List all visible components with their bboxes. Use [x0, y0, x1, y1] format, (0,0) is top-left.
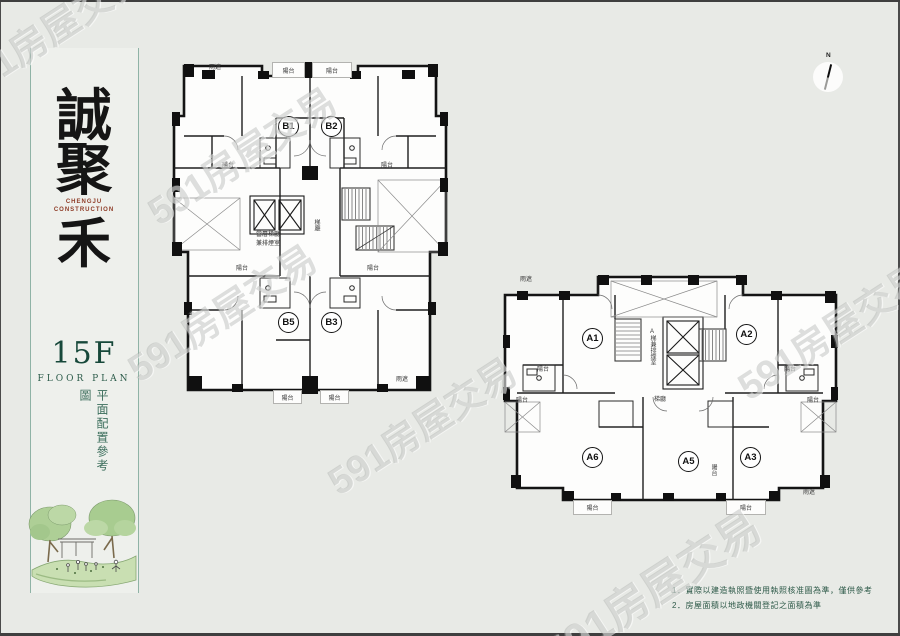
balcony-label: 陽台: [726, 500, 766, 515]
north-label: N: [826, 52, 831, 59]
brand-calligraphy-char-1: 誠: [40, 88, 128, 144]
vertical-title: 平面配置參考圖: [77, 389, 111, 485]
note-line-2: 2．房屋面積以地政機關登記之面積為準: [672, 598, 872, 613]
floor-number: 15F: [30, 336, 138, 371]
balcony-label: 陽台: [516, 398, 528, 404]
rain-shade-label: 雨遮: [209, 65, 221, 71]
rain-shade-label: 雨遮: [520, 277, 532, 283]
floor-plan-a: [503, 275, 838, 515]
floor-plan-page: 591房屋交易 591房屋交易 591房屋交易 591房屋交易 591房屋交易 …: [0, 0, 900, 636]
unit-label-a5: A5: [678, 451, 699, 472]
unit-label-b3: B3: [321, 312, 342, 333]
unit-label-a6: A6: [582, 447, 603, 468]
balcony-label: 陽台: [573, 500, 612, 515]
balcony-label: 陽台: [273, 390, 302, 404]
stair-smoke-room-label-line2: 兼排煙室: [250, 240, 286, 249]
balcony-label: 陽台: [710, 464, 716, 486]
floor-plan-subtitle: FLOOR PLAN: [30, 374, 138, 384]
balcony-label: 陽台: [222, 163, 234, 169]
stair-smoke-room-label-a: A梯兼排煙室: [649, 329, 655, 375]
balcony-label: 陽台: [272, 62, 305, 78]
balcony-label: 陽台: [312, 62, 352, 78]
balcony-label: 陽台: [807, 398, 819, 404]
unit-label-a3: A3: [740, 447, 761, 468]
stair-smoke-room-label-line1: 當層梯廳: [250, 231, 286, 240]
note-line-1: 1．實際以建造執照暨使用執照核准圖為準，僅供參考: [672, 583, 872, 598]
balcony-label: 陽台: [381, 163, 393, 169]
disclaimer-notes: 1．實際以建造執照暨使用執照核准圖為準，僅供參考 2．房屋面積以地政機關登記之面…: [672, 583, 872, 613]
balcony-label: 陽台: [367, 266, 379, 272]
unit-label-b2: B2: [321, 116, 342, 137]
floor-plan-b: [172, 58, 448, 402]
lift-hall-label-b: 梯廳: [313, 219, 319, 241]
rain-shade-label: 雨遮: [396, 377, 408, 383]
brand-en-line-1: CHENGJU: [38, 199, 130, 207]
unit-label-a1: A1: [582, 328, 603, 349]
unit-label-b1: B1: [278, 116, 299, 137]
rain-shade-label: 雨遮: [803, 490, 815, 496]
park-illustration: [28, 492, 140, 594]
brand-calligraphy-char-2: 聚: [40, 142, 128, 198]
unit-label-a2: A2: [736, 324, 757, 345]
balcony-label: 陽台: [236, 266, 248, 272]
brand-calligraphy-char-3: 禾: [40, 216, 128, 270]
balcony-label: 陽台: [784, 367, 796, 373]
unit-label-b5: B5: [278, 312, 299, 333]
balcony-label: 陽台: [320, 390, 349, 404]
lift-hall-label-a: 梯廳: [654, 397, 666, 403]
balcony-label: 陽台: [537, 367, 549, 373]
